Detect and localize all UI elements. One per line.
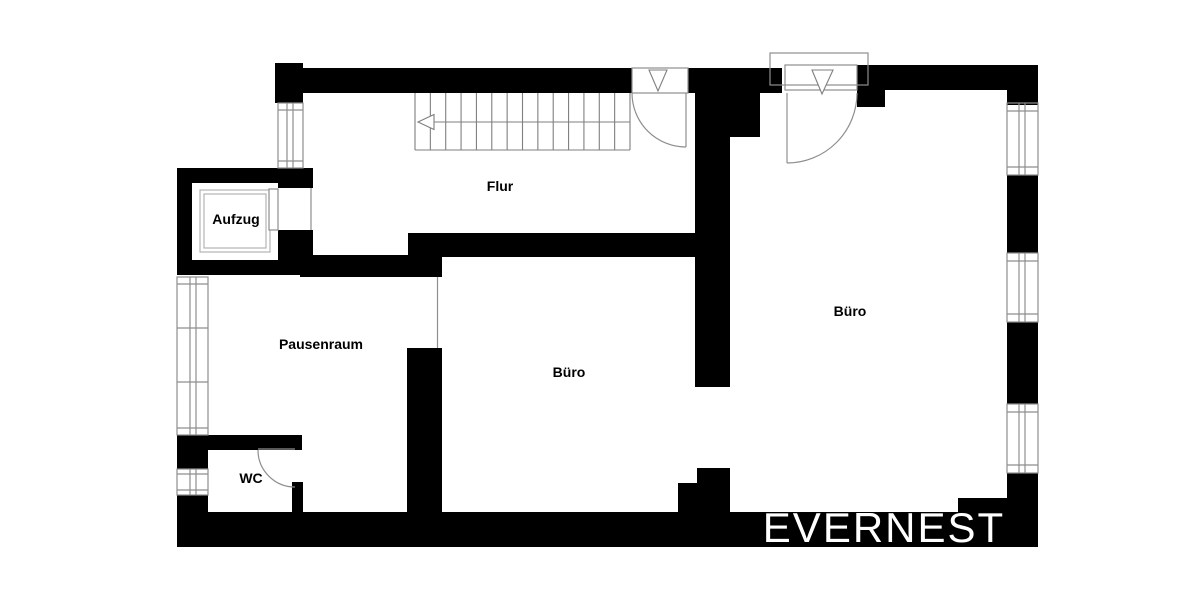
room-label-flur: Flur bbox=[487, 178, 514, 194]
wall-top-left-pillar bbox=[275, 63, 303, 103]
window-right-2 bbox=[1007, 253, 1038, 322]
aufzug-doorway-gap bbox=[278, 188, 313, 230]
watermark-logo: EVERNEST bbox=[763, 504, 1005, 551]
wall-top-between-doors bbox=[688, 68, 782, 93]
room-label-buero-mitte: Büro bbox=[553, 364, 586, 380]
window-left-long bbox=[177, 277, 208, 435]
room-label-pausenraum: Pausenraum bbox=[279, 336, 363, 352]
elevator-door-panel bbox=[269, 189, 278, 230]
wall-mid-bottom-step-2 bbox=[678, 483, 730, 512]
door-swing-arc bbox=[258, 450, 295, 487]
window-frame bbox=[278, 103, 303, 168]
wall-right-segment-2 bbox=[1007, 175, 1038, 253]
wall-mid-bottom-step-1 bbox=[697, 468, 730, 483]
entrance-arrow-icon bbox=[649, 70, 667, 91]
door-swing-arc bbox=[632, 93, 686, 147]
wall-right-corner-top bbox=[1007, 65, 1038, 105]
floor-plan-canvas: Aufzug Flur Pausenraum Büro Büro WC EVER… bbox=[0, 0, 1200, 600]
wall-right-segment-3 bbox=[1007, 322, 1038, 404]
window-left-small bbox=[177, 469, 208, 495]
walls bbox=[177, 63, 1038, 547]
room-label-wc: WC bbox=[239, 470, 262, 486]
wall-buero-mitte-top bbox=[408, 233, 697, 257]
window-frame bbox=[1007, 404, 1038, 473]
floor-plan-svg: Aufzug Flur Pausenraum Büro Büro WC EVER… bbox=[0, 0, 1200, 600]
door-buero-entrance bbox=[770, 53, 868, 163]
window-top-left bbox=[278, 103, 303, 168]
wall-vertical-mid-right bbox=[695, 93, 730, 387]
window-frame bbox=[1007, 103, 1038, 175]
wall-left-between-windows bbox=[177, 435, 208, 469]
windows bbox=[177, 103, 1038, 495]
wall-step-below-top bbox=[730, 93, 760, 137]
wall-pausenraum-buero-divider bbox=[407, 348, 442, 513]
door-wc bbox=[258, 449, 295, 487]
room-label-aufzug: Aufzug bbox=[212, 211, 259, 227]
wall-bottom-left-corner bbox=[177, 495, 208, 515]
wall-wc-top bbox=[208, 435, 302, 450]
door-swing-arc bbox=[787, 93, 857, 163]
stairs bbox=[415, 93, 630, 150]
wall-top-main bbox=[275, 68, 632, 93]
window-frame bbox=[177, 277, 208, 435]
door-flur-entrance bbox=[632, 68, 688, 147]
stairs-direction-arrow-icon bbox=[418, 115, 434, 130]
window-right-3 bbox=[1007, 404, 1038, 473]
window-frame bbox=[1007, 253, 1038, 322]
wall-lip-below-top-right bbox=[857, 90, 885, 107]
window-frame bbox=[177, 469, 208, 495]
wall-buero-mitte-top-end bbox=[408, 233, 442, 275]
room-label-buero-rechts: Büro bbox=[834, 303, 867, 319]
window-right-1 bbox=[1007, 103, 1038, 175]
